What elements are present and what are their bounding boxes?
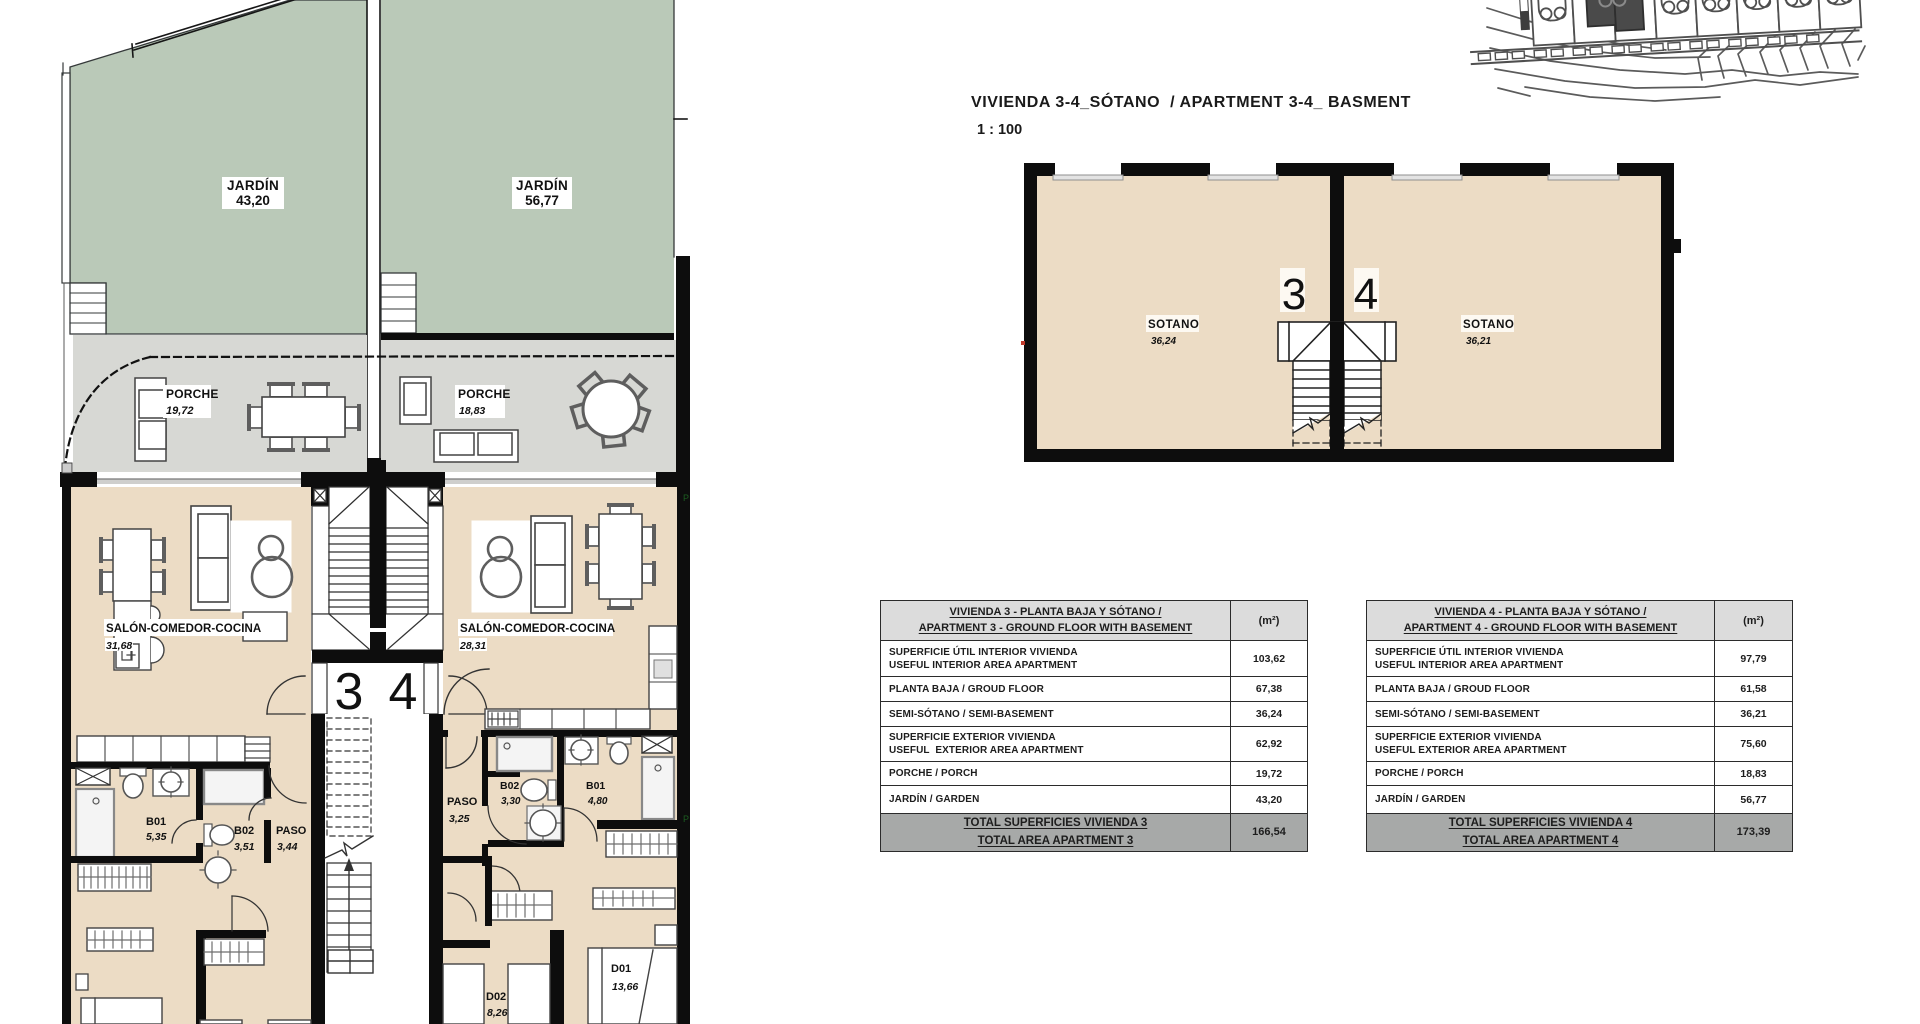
svg-text:B01: B01 <box>146 816 166 828</box>
svg-text:SALÓN-COMEDOR-COCINA: SALÓN-COMEDOR-COCINA <box>460 622 615 635</box>
svg-text:3: 3 <box>1282 270 1306 319</box>
svg-text:3,51: 3,51 <box>234 841 255 853</box>
svg-text:B02: B02 <box>500 780 519 792</box>
svg-text:3,44: 3,44 <box>277 841 298 853</box>
svg-text:56,77: 56,77 <box>525 193 559 208</box>
svg-text:B02: B02 <box>234 825 254 837</box>
svg-text:4: 4 <box>1354 270 1378 319</box>
svg-text:P: P <box>683 493 689 503</box>
svg-text:PASO: PASO <box>276 825 307 837</box>
svg-text:18,83: 18,83 <box>459 405 485 417</box>
svg-text:3,30: 3,30 <box>501 796 521 807</box>
svg-text:28,31: 28,31 <box>459 640 486 652</box>
svg-text:JARDÍN: JARDÍN <box>227 178 279 193</box>
svg-text:5,35: 5,35 <box>146 831 167 843</box>
svg-text:SOTANO: SOTANO <box>1463 319 1514 331</box>
svg-text:4,80: 4,80 <box>587 796 608 807</box>
svg-text:8,26: 8,26 <box>487 1007 508 1019</box>
svg-text:31,68: 31,68 <box>106 640 132 652</box>
svg-text:JARDÍN: JARDÍN <box>516 178 568 193</box>
svg-text:SALÓN-COMEDOR-COCINA: SALÓN-COMEDOR-COCINA <box>106 622 261 635</box>
svg-text:43,20: 43,20 <box>236 193 270 208</box>
svg-text:B01: B01 <box>586 780 605 792</box>
svg-text:3,25: 3,25 <box>449 813 470 825</box>
svg-text:19,72: 19,72 <box>166 405 194 417</box>
svg-text:P: P <box>683 814 689 824</box>
svg-text:3: 3 <box>335 663 364 721</box>
svg-text:D01: D01 <box>611 963 631 975</box>
svg-text:4: 4 <box>389 663 418 721</box>
svg-text:36,21: 36,21 <box>1466 336 1491 347</box>
svg-text:D02: D02 <box>486 991 506 1003</box>
svg-text:SOTANO: SOTANO <box>1148 319 1199 331</box>
svg-text:PORCHE: PORCHE <box>166 387 219 401</box>
svg-text:PORCHE: PORCHE <box>458 387 511 401</box>
svg-text:36,24: 36,24 <box>1151 336 1176 347</box>
svg-text:13,66: 13,66 <box>612 981 638 993</box>
svg-text:PASO: PASO <box>447 796 478 808</box>
